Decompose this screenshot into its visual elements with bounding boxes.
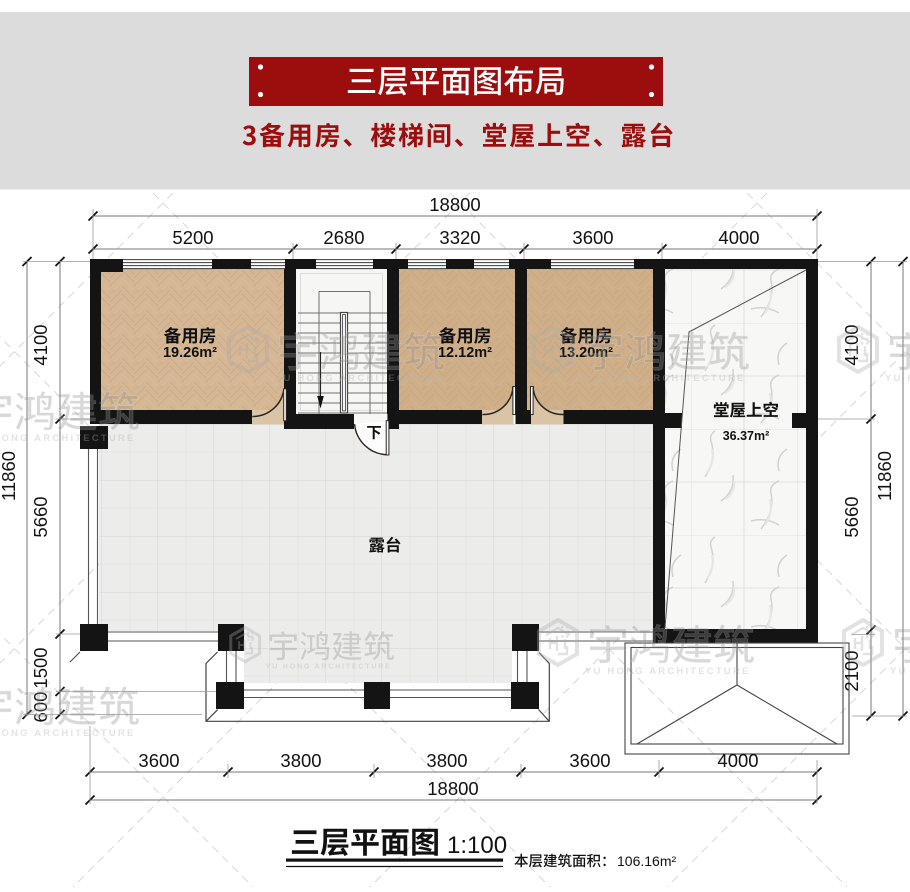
svg-text:5660: 5660 <box>841 496 862 537</box>
svg-text:3600: 3600 <box>572 227 613 248</box>
svg-text:YU HONG ARCHITECTURE: YU HONG ARCHITECTURE <box>266 662 392 671</box>
svg-text:18800: 18800 <box>429 194 480 215</box>
svg-text:2680: 2680 <box>323 227 364 248</box>
svg-text:11860: 11860 <box>874 451 895 501</box>
svg-text:4000: 4000 <box>718 227 759 248</box>
svg-text:36.37m²: 36.37m² <box>723 429 770 443</box>
svg-text:YU HONG ARCHITECTURE: YU HONG ARCHITECTURE <box>275 373 441 384</box>
svg-text:1:100: 1:100 <box>447 832 507 859</box>
svg-text:3800: 3800 <box>426 750 467 771</box>
svg-text:3320: 3320 <box>439 227 480 248</box>
svg-text:YU HONG ARCHITECTURE: YU HONG ARCHITECTURE <box>580 373 746 384</box>
svg-text:YU HONG ARCHITECTURE: YU HONG ARCHITECTURE <box>885 373 910 384</box>
svg-text:5660: 5660 <box>30 496 51 537</box>
svg-text:18800: 18800 <box>427 778 478 799</box>
svg-text:12.12m²: 12.12m² <box>438 345 492 361</box>
svg-text:19.26m²: 19.26m² <box>163 345 217 361</box>
svg-text:4000: 4000 <box>717 750 758 771</box>
svg-text:YU HONG ARCHITECTURE: YU HONG ARCHITECTURE <box>890 666 910 677</box>
svg-text:3600: 3600 <box>138 750 179 771</box>
svg-text:1500: 1500 <box>30 647 51 688</box>
svg-text:YU HONG ARCHITECTURE: YU HONG ARCHITECTURE <box>585 666 751 677</box>
svg-text:YU HONG ARCHITECTURE: YU HONG ARCHITECTURE <box>0 728 136 739</box>
svg-text:YU HONG ARCHITECTURE: YU HONG ARCHITECTURE <box>0 433 136 444</box>
svg-text:106.16m²: 106.16m² <box>617 853 676 869</box>
svg-text:4100: 4100 <box>30 324 51 365</box>
svg-text:3600: 3600 <box>569 750 610 771</box>
svg-text:11860: 11860 <box>0 451 19 501</box>
svg-text:3800: 3800 <box>280 750 321 771</box>
svg-text:5200: 5200 <box>172 227 213 248</box>
